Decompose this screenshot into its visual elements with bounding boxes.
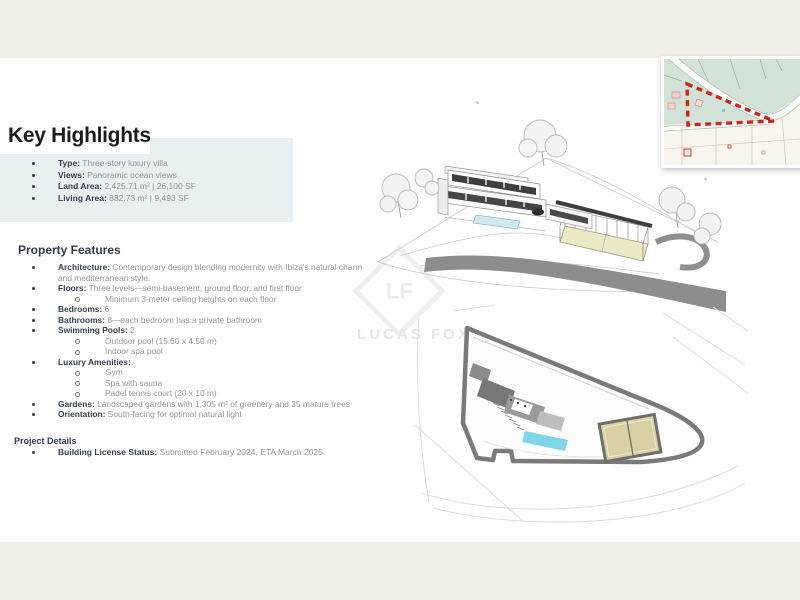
bullet-icon [32,162,35,165]
project-details-list: Building License Status: Submitted Febru… [24,447,354,458]
bottom-margin-band [0,542,800,600]
sub-list-item: Spa with sauna [58,378,364,389]
bullet-icon [32,197,35,200]
bullet-icon [32,266,35,269]
list-item: Bedrooms: 6 [24,304,364,315]
sub-bullet-icon [75,350,80,355]
item-label: Orientation: [58,409,105,419]
bullet-icon [32,451,35,454]
padel-court-plan [599,414,661,461]
item-label: Gardens: [58,399,95,409]
list-item: Orientation: South-facing for optimal na… [24,409,364,420]
list-item: Swimming Pools: 2Outdoor pool (15.60 x 4… [24,325,364,357]
list-item: Building License Status: Submitted Febru… [24,447,354,458]
item-label: Bathrooms: [58,315,105,325]
sub-bullet-icon [75,381,80,386]
bullet-icon [32,287,35,290]
sub-bullet-icon [75,297,80,302]
sub-list-item: Gym [58,367,364,378]
list-item: Architecture: Contemporary design blendi… [24,262,364,283]
sub-bullet-icon [75,392,80,397]
bullet-icon [32,361,35,364]
key-highlights-title: Key Highlights [8,124,151,148]
item-label: Floors: [58,283,86,293]
bullet-icon [32,319,35,322]
sub-list-item: Minimum 3-meter ceiling heights on each … [58,294,364,305]
item-label: Type: [58,158,80,168]
project-details-title: Project Details [14,436,77,446]
sub-list: Minimum 3-meter ceiling heights on each … [58,294,364,305]
bullet-icon [32,413,35,416]
sub-list: GymSpa with saunaPadel tennis court (20 … [58,367,364,399]
sub-list-item: Indoor spa pool [58,346,364,357]
site-plan-rendering [413,303,748,525]
list-item: Views: Panoramic ocean views [24,170,286,182]
item-label: Views: [58,170,85,180]
bullet-icon [32,185,35,188]
item-label: Land Area: [58,181,102,191]
list-item: Land Area: 2,425.71 m² | 26,100 SF [24,181,286,193]
bullet-icon [32,174,35,177]
list-item: Living Area: 882.73 m² | 9,493 SF [24,193,286,205]
list-item: Type: Three-story luxury villa [24,158,286,170]
sub-list-item: Padel tennis court (20 x 10 m) [58,388,364,399]
item-label: Bedrooms: [58,304,102,314]
item-label: Building License Status: [58,447,157,457]
item-label: Swimming Pools: [58,325,128,335]
item-label: Living Area: [58,193,107,203]
list-item: Floors: Three levels—semi-basement, grou… [24,283,364,304]
item-label: Architecture: [58,262,110,272]
bullet-icon [32,329,35,332]
item-label: Luxury Amenities: [58,357,131,367]
cadastral-map [664,59,800,165]
bullet-icon [32,403,35,406]
list-item: Bathrooms: 8—each bedroom has a private … [24,315,364,326]
property-features-list: Architecture: Contemporary design blendi… [24,262,364,420]
key-highlights-list: Type: Three-story luxury villaViews: Pan… [24,158,286,204]
sub-list: Outdoor pool (15.60 x 4.50 m)Indoor spa … [58,336,364,357]
outdoor-pool [473,215,520,229]
sub-bullet-icon [75,371,80,376]
list-item: Gardens: Landscaped gardens with 1,305 m… [24,399,364,410]
sub-list-item: Outdoor pool (15.60 x 4.50 m) [58,336,364,347]
property-features-title: Property Features [18,243,121,257]
spa-tub [532,209,544,216]
bullet-icon [32,308,35,311]
list-item: Luxury Amenities:GymSpa with saunaPadel … [24,357,364,399]
sub-bullet-icon [75,339,80,344]
location-map [661,56,800,168]
